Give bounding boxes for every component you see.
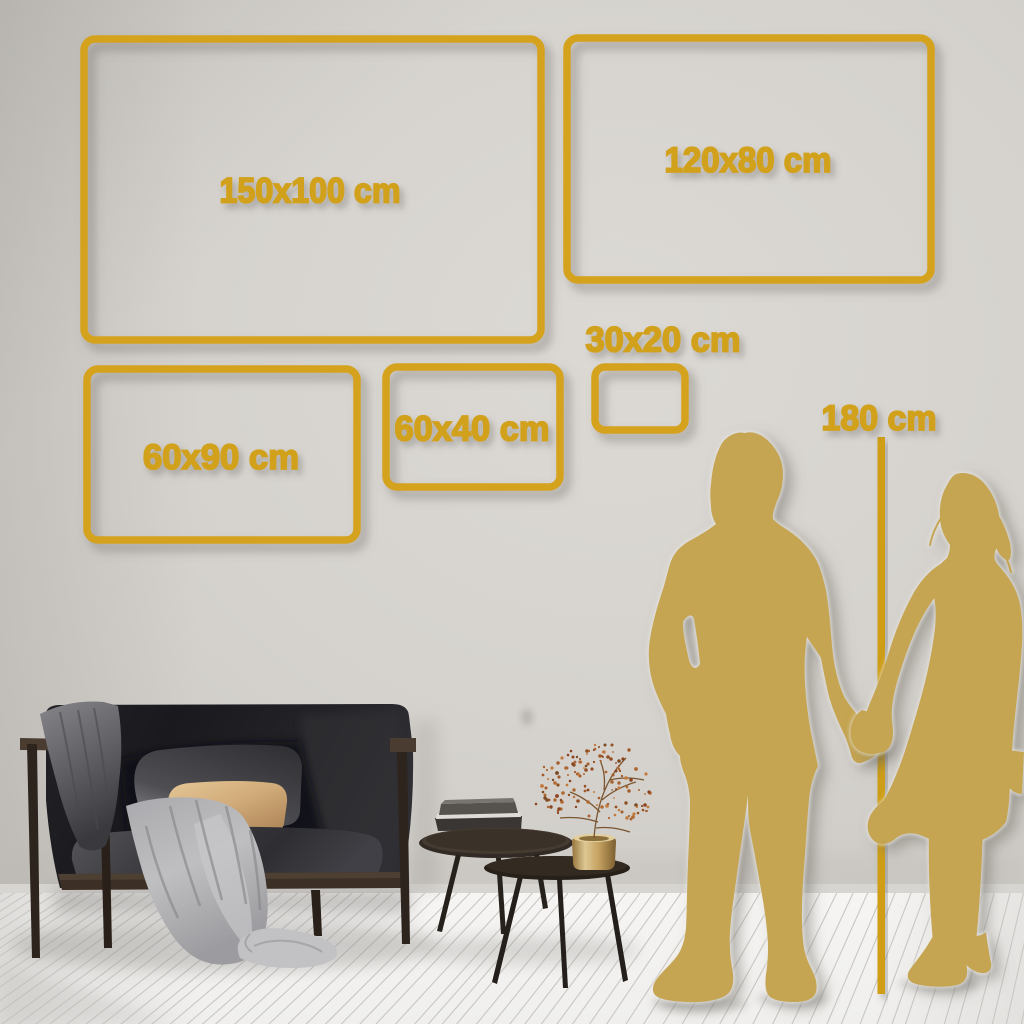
svg-text:150x100 cm: 150x100 cm — [220, 172, 401, 211]
svg-text:60x40 cm: 60x40 cm — [395, 410, 550, 449]
svg-text:30x20 cm: 30x20 cm — [586, 321, 741, 360]
svg-text:180 cm: 180 cm — [822, 399, 937, 438]
svg-text:60x90 cm: 60x90 cm — [143, 438, 299, 477]
svg-text:120x80 cm: 120x80 cm — [665, 141, 832, 180]
